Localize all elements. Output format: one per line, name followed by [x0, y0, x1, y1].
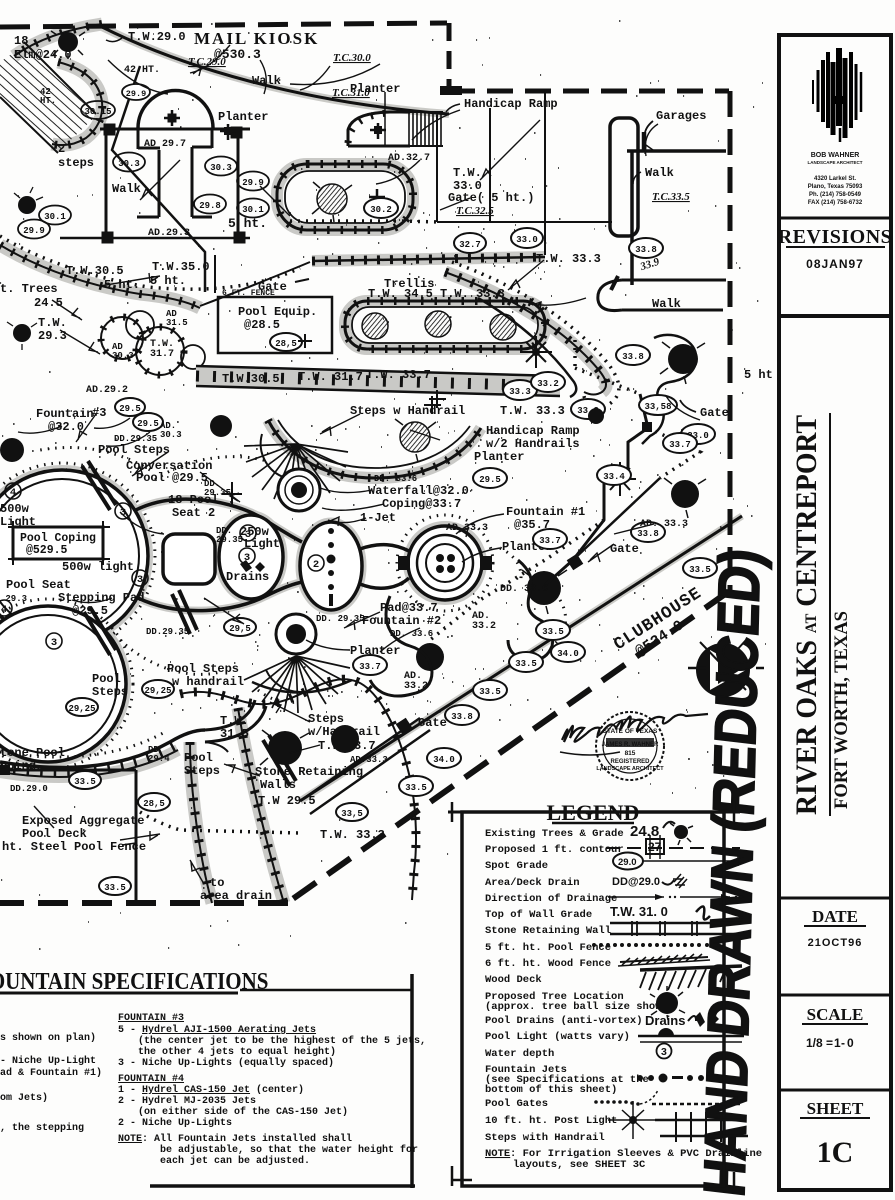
svg-text:BOB WAHNER: BOB WAHNER: [811, 152, 860, 159]
svg-text:Walk: Walk: [112, 182, 141, 196]
svg-text:5 ft. ht. Pool Fence: 5 ft. ht. Pool Fence: [485, 942, 611, 954]
svg-text:REGISTERED: REGISTERED: [610, 759, 650, 765]
svg-text:REVISIONS: REVISIONS: [778, 226, 893, 248]
svg-text:Spot Grade: Spot Grade: [485, 860, 548, 872]
svg-text:29.35: 29.35: [216, 535, 243, 545]
svg-text:2: 2: [58, 142, 65, 156]
svg-text:FORT WORTH, TEXAS: FORT WORTH, TEXAS: [831, 611, 852, 809]
svg-text:w/2 Handrails: w/2 Handrails: [486, 437, 580, 451]
svg-text:Pool Gates: Pool Gates: [485, 1098, 548, 1110]
svg-text:29.5: 29.5: [119, 404, 141, 414]
svg-text:AD.32.7: AD.32.7: [388, 153, 430, 164]
svg-text:T.W. 33.3: T.W. 33.3: [500, 404, 565, 418]
svg-text:FOUNTAIN SPECIFICATIONS: FOUNTAIN SPECIFICATIONS: [0, 968, 268, 995]
svg-text:T.C.31.0: T.C.31.0: [332, 87, 370, 99]
svg-text:- Niche Up-Light: - Niche Up-Light: [0, 1055, 96, 1067]
svg-text:33,58: 33,58: [644, 402, 671, 412]
svg-text:(approx. tree ball size shown): (approx. tree ball size shown): [485, 1001, 674, 1013]
svg-text:(on either side of the CAS-150: (on either side of the CAS-150 Jet): [138, 1106, 348, 1118]
svg-text:33.5: 33.5: [479, 687, 501, 697]
svg-text:33.5: 33.5: [542, 627, 564, 637]
svg-text:28,5: 28,5: [275, 339, 297, 349]
svg-text:33.0: 33.0: [516, 235, 538, 245]
svg-text:ht. Steel Pool Fence: ht. Steel Pool Fence: [2, 840, 146, 854]
svg-text:T.C.30.0: T.C.30.0: [333, 52, 371, 64]
svg-text:T.W.30.5: T.W.30.5: [222, 372, 280, 386]
svg-text:34.0: 34.0: [433, 755, 455, 765]
svg-text:T.W. 33.3: T.W. 33.3: [536, 252, 601, 266]
svg-text:1 - Hydrel CAS-150 Jet (center: 1 - Hydrel CAS-150 Jet (center): [118, 1084, 304, 1096]
svg-text:FOUNTAIN #4: FOUNTAIN #4: [118, 1074, 184, 1085]
svg-text:Pool Light (watts vary): Pool Light (watts vary): [485, 1031, 630, 1043]
svg-text:AD.29.3: AD.29.3: [148, 228, 190, 239]
svg-text:18: 18: [14, 34, 28, 48]
svg-text:AD 29.7: AD 29.7: [144, 139, 186, 150]
svg-text:T.W.: T.W.: [220, 714, 249, 728]
svg-text:08JAN97: 08JAN97: [806, 257, 864, 271]
svg-text:Stepping Pad: Stepping Pad: [58, 591, 144, 605]
svg-text:33.2: 33.2: [472, 621, 496, 632]
svg-text:32.7: 32.7: [459, 240, 481, 250]
svg-text:LEGEND: LEGEND: [547, 800, 640, 825]
svg-text:LANDSCAPE ARCHITECT: LANDSCAPE ARCHITECT: [596, 766, 664, 772]
svg-text:Stone Retaining Wall: Stone Retaining Wall: [485, 925, 611, 937]
svg-text:Drains: Drains: [645, 1013, 685, 1028]
svg-text:33.2: 33.2: [537, 379, 559, 389]
svg-text:33.3: 33.3: [509, 387, 531, 397]
svg-text:T.C.33.5: T.C.33.5: [652, 191, 690, 203]
svg-text:bottom of this sheet): bottom of this sheet): [485, 1084, 617, 1096]
svg-text:Water depth: Water depth: [485, 1048, 554, 1060]
svg-text:Pool: Pool: [92, 672, 121, 686]
svg-text:29,5: 29,5: [229, 624, 251, 634]
svg-text:5 ht.: 5 ht.: [228, 216, 267, 231]
svg-text:30.1: 30.1: [44, 212, 66, 222]
svg-text:Gate( 5 ht.): Gate( 5 ht.): [448, 191, 534, 205]
svg-text:AD. 33.3: AD. 33.3: [640, 519, 688, 530]
svg-text:500w: 500w: [0, 502, 30, 516]
svg-text:Existing Trees & Grade: Existing Trees & Grade: [485, 828, 624, 840]
svg-text:@32.0: @32.0: [48, 420, 84, 434]
svg-text:Pool Deck: Pool Deck: [22, 827, 87, 841]
svg-text:Top of Wall Grade: Top of Wall Grade: [485, 909, 592, 921]
svg-text:Area/Deck Drain: Area/Deck Drain: [485, 877, 580, 889]
svg-text:28,5: 28,5: [143, 799, 165, 809]
svg-text:JAMES R. WAHNER: JAMES R. WAHNER: [602, 742, 659, 748]
svg-text:3: 3: [661, 1046, 667, 1058]
svg-text:Planter: Planter: [218, 110, 268, 124]
svg-text:om Jets): om Jets): [0, 1092, 48, 1104]
svg-text:HT.: HT.: [40, 96, 56, 106]
svg-text:@28.5: @28.5: [244, 318, 280, 332]
svg-text:5 ht.: 5 ht.: [150, 274, 186, 288]
svg-text:33.5: 33.5: [405, 783, 427, 793]
svg-text:FAX (214) 758-6732: FAX (214) 758-6732: [808, 200, 863, 206]
svg-text:4: 4: [10, 487, 16, 499]
svg-text:(the center jet to be the high: (the center jet to be the highest of the…: [138, 1035, 426, 1047]
svg-text:T.W.: T.W.: [453, 166, 482, 180]
svg-text:Steps with Handrail: Steps with Handrail: [485, 1132, 605, 1144]
svg-text:to: to: [210, 876, 224, 890]
svg-text:29.5: 29.5: [137, 419, 159, 429]
svg-text:33.2: 33.2: [404, 681, 428, 692]
svg-text:Pool Seat: Pool Seat: [6, 578, 71, 592]
svg-text:4: 4: [1, 604, 7, 616]
svg-text:1C: 1C: [817, 1136, 854, 1169]
svg-text:29,25: 29,25: [144, 686, 171, 696]
svg-text:Plano, Texas 75093: Plano, Texas 75093: [808, 184, 863, 190]
svg-text:DD.29.35: DD.29.35: [146, 627, 189, 637]
svg-text:Proposed 1 ft. contour: Proposed 1 ft. contour: [485, 844, 624, 856]
svg-text:10 ft. ht. Post Light: 10 ft. ht. Post Light: [485, 1115, 617, 1127]
svg-text:Walk: Walk: [645, 166, 674, 180]
svg-text:steps: steps: [58, 156, 94, 170]
svg-text:21OCT96: 21OCT96: [808, 937, 863, 949]
svg-text:Gate: Gate: [700, 406, 729, 420]
svg-text:30.3: 30.3: [210, 163, 232, 173]
svg-text:Pool Steps: Pool Steps: [167, 662, 239, 676]
svg-text:Fountain: Fountain: [36, 407, 94, 421]
svg-text:Garages: Garages: [656, 109, 706, 123]
svg-text:FOUNTAIN #3: FOUNTAIN #3: [118, 1013, 184, 1024]
svg-text:27: 27: [648, 840, 662, 854]
svg-text:33.8: 33.8: [635, 245, 657, 255]
svg-text:Walk: Walk: [652, 297, 681, 311]
svg-text:Seat 2: Seat 2: [172, 506, 215, 520]
svg-text:4320 Larkel St.: 4320 Larkel St.: [814, 176, 856, 182]
svg-text:AD.29.2: AD.29.2: [86, 385, 128, 396]
svg-text:6 ft. ht. Wood Fence: 6 ft. ht. Wood Fence: [485, 958, 611, 970]
svg-text:Steps: Steps: [308, 712, 344, 726]
svg-text:oping: oping: [0, 759, 36, 773]
svg-text:1/8: 1/8: [806, 1036, 823, 1050]
svg-text:Planter: Planter: [474, 450, 524, 464]
svg-text:s shown on plan): s shown on plan): [0, 1032, 96, 1044]
svg-text:815: 815: [625, 750, 636, 757]
svg-text:layouts, see SHEET 3C: layouts, see SHEET 3C: [513, 1159, 646, 1171]
svg-text:T.W. 33.7: T.W. 33.7: [366, 368, 431, 382]
svg-text:T.W. 31.7: T.W. 31.7: [298, 370, 363, 384]
svg-text:Walls: Walls: [260, 778, 296, 792]
svg-text:Steps: Steps: [184, 764, 220, 778]
svg-text:30.3: 30.3: [160, 430, 182, 440]
svg-text:Direction of Drainage: Direction of Drainage: [485, 893, 617, 905]
svg-text:-: -: [841, 1036, 845, 1050]
svg-text:@29.5: @29.5: [72, 604, 108, 618]
svg-text:30.3: 30.3: [112, 351, 134, 361]
svg-text:33.7: 33.7: [539, 536, 561, 546]
svg-text:5 ht.: 5 ht.: [104, 278, 140, 292]
svg-text:Gate: Gate: [610, 542, 639, 556]
svg-text:Ph. (214) 758-0549: Ph. (214) 758-0549: [809, 192, 862, 198]
svg-text:29.9: 29.9: [126, 89, 146, 99]
svg-text:33.8: 33.8: [622, 352, 644, 362]
svg-text:33.5: 33.5: [74, 777, 96, 787]
svg-text:33.5: 33.5: [104, 883, 126, 893]
svg-text:SCALE: SCALE: [807, 1005, 864, 1024]
svg-text:, the stepping: , the stepping: [0, 1122, 84, 1134]
svg-text:31.5: 31.5: [166, 318, 188, 328]
svg-text:29.8: 29.8: [199, 201, 221, 211]
svg-text:: All Fountain Jets installed: : All Fountain Jets installed shall: [142, 1133, 352, 1145]
svg-text:Pool Drains (anti-vortex): Pool Drains (anti-vortex): [485, 1015, 643, 1027]
svg-text:2 - Niche Up-Lights: 2 - Niche Up-Lights: [118, 1117, 232, 1129]
svg-text:Fountain #1: Fountain #1: [506, 505, 585, 519]
svg-text:33.8: 33.8: [451, 712, 473, 722]
svg-text:ad & Fountain #1): ad & Fountain #1): [0, 1067, 102, 1079]
svg-text:42 HT.: 42 HT.: [124, 65, 160, 76]
svg-text:DD@29.0: DD@29.0: [612, 876, 660, 888]
svg-text:29,25: 29,25: [68, 704, 95, 714]
svg-text:Fountain #2: Fountain #2: [362, 614, 441, 628]
svg-text:33,5: 33,5: [341, 809, 363, 819]
svg-text:t. Trees: t. Trees: [0, 282, 58, 296]
svg-text:29.9: 29.9: [23, 226, 45, 236]
svg-text:3 - Niche Up-Lights (equally s: 3 - Niche Up-Lights (equally spaced): [118, 1057, 334, 1069]
svg-text:3: 3: [51, 637, 57, 649]
svg-text:31.7: 31.7: [150, 349, 174, 360]
svg-text:DD.29.0: DD.29.0: [10, 784, 48, 794]
svg-text:Exposed Aggregate: Exposed Aggregate: [22, 814, 144, 828]
svg-text:Handicap Ramp: Handicap Ramp: [486, 424, 580, 438]
svg-text:24.5: 24.5: [34, 296, 63, 310]
svg-text:33.4: 33.4: [603, 472, 625, 482]
svg-text:30.1: 30.1: [242, 205, 264, 215]
svg-text:T.W. 31. 0: T.W. 31. 0: [610, 904, 668, 919]
svg-text:29.4: 29.4: [148, 754, 170, 764]
svg-text:MAIL KIOSK: MAIL KIOSK: [194, 29, 319, 48]
svg-text:29.5: 29.5: [479, 475, 501, 485]
svg-text:Pool Steps: Pool Steps: [98, 443, 170, 457]
svg-text:Coping@33.7: Coping@33.7: [382, 497, 461, 511]
svg-text:Handicap Ramp: Handicap Ramp: [464, 97, 558, 111]
svg-text:DD. 33.6: DD. 33.6: [374, 474, 417, 484]
svg-text:24.8: 24.8: [630, 823, 659, 840]
svg-text:the other 4 jets to equal heig: the other 4 jets to equal height): [138, 1046, 336, 1058]
svg-text:=: =: [826, 1036, 833, 1050]
svg-text:33.8: 33.8: [637, 529, 659, 539]
svg-text:1: 1: [834, 1036, 841, 1050]
svg-text:NOTE: NOTE: [118, 1134, 142, 1145]
svg-text:.: .: [447, 308, 454, 322]
svg-text:30.3: 30.3: [118, 159, 140, 169]
svg-text:5 ht: 5 ht: [744, 368, 773, 382]
svg-text:DD. 33.6: DD. 33.6: [500, 584, 548, 595]
svg-text:Steps w Handrail: Steps w Handrail: [350, 404, 465, 418]
svg-text:34.0: 34.0: [557, 649, 579, 659]
svg-text:tone Pool: tone Pool: [0, 746, 65, 760]
svg-text:2 - Hydrel MJ-2035 Jets: 2 - Hydrel MJ-2035 Jets: [118, 1095, 256, 1107]
svg-text:33.7: 33.7: [669, 440, 691, 450]
svg-text:31.5: 31.5: [220, 727, 249, 741]
svg-text:DATE: DATE: [812, 907, 858, 926]
svg-text:30.15: 30.15: [84, 107, 111, 117]
svg-text:LANDSCAPE ARCHITECT: LANDSCAPE ARCHITECT: [807, 160, 862, 165]
svg-text:Drains: Drains: [226, 570, 269, 584]
svg-text:T.W. 33.3: T.W. 33.3: [320, 828, 385, 842]
svg-text:area drain: area drain: [200, 889, 272, 903]
svg-text:500w light: 500w light: [62, 560, 134, 574]
svg-text:Light: Light: [244, 537, 280, 551]
svg-text:Elm@24.0: Elm@24.0: [14, 48, 72, 62]
svg-text:Pool: Pool: [184, 751, 213, 765]
svg-text:Gate: Gate: [418, 716, 447, 730]
svg-text:@529.5: @529.5: [26, 544, 68, 557]
svg-text:SHEET: SHEET: [807, 1099, 864, 1118]
svg-text:29.0: 29.0: [618, 857, 637, 868]
svg-text:30.2: 30.2: [370, 205, 392, 215]
svg-text:Pool @29.5: Pool @29.5: [136, 471, 208, 485]
svg-text:5 - Hydrel AJI-1500 Aerating J: 5 - Hydrel AJI-1500 Aerating Jets: [118, 1024, 316, 1036]
svg-text:Wood Deck: Wood Deck: [485, 974, 542, 986]
svg-text:be adjustable, so that the wat: be adjustable, so that the water height …: [160, 1144, 418, 1156]
svg-text:.29.3: .29.3: [0, 594, 27, 604]
svg-text:0: 0: [847, 1036, 854, 1050]
svg-text:33.7: 33.7: [359, 662, 381, 672]
svg-text:33.5: 33.5: [515, 659, 537, 669]
svg-text:T.W.30.5: T.W.30.5: [66, 264, 124, 278]
svg-text:T.C.32.5: T.C.32.5: [456, 205, 494, 217]
svg-text:2: 2: [313, 559, 319, 571]
svg-text:T.W. 34.5: T.W. 34.5: [368, 287, 433, 301]
svg-text:Steps: Steps: [92, 685, 128, 699]
svg-text:3: 3: [137, 574, 143, 586]
svg-text:each jet can be adjusted.: each jet can be adjusted.: [160, 1155, 310, 1167]
svg-text:T.W.: T.W.: [38, 316, 67, 330]
svg-text:STATE OF TEXAS: STATE OF TEXAS: [603, 728, 658, 735]
svg-text:w handrail: w handrail: [172, 675, 244, 689]
svg-text:NOTE: NOTE: [485, 1148, 510, 1160]
svg-text:Pool Equip.: Pool Equip.: [238, 305, 317, 319]
svg-text:#3: #3: [92, 406, 106, 420]
svg-text:T.W.35.0: T.W.35.0: [152, 260, 210, 274]
svg-text:Waterfall@32.0: Waterfall@32.0: [368, 484, 469, 498]
